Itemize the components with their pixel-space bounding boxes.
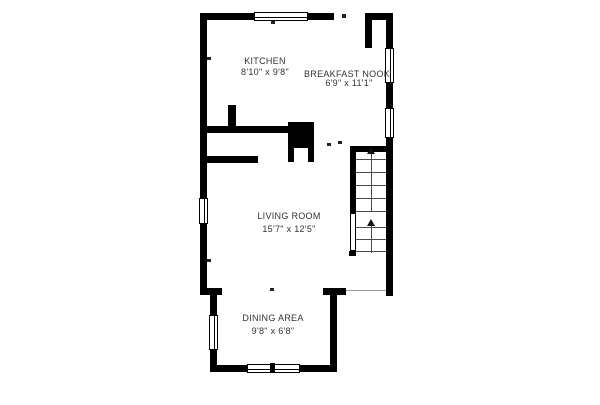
alcove-left-wall (365, 13, 372, 48)
stair-up-arrow-icon (367, 147, 375, 154)
back-door-opening (346, 290, 386, 291)
fireplace-block (288, 122, 314, 148)
opening-tick (327, 143, 331, 146)
stair-direction-line (371, 154, 372, 212)
living-window-left-icon (199, 198, 208, 224)
wall-left-lower (200, 224, 207, 295)
floorplan: KITCHEN 8'10" x 9'8" BREAKFAST NOOK 6'9"… (0, 0, 600, 405)
wall-top-left (200, 13, 254, 20)
wall-right-lower (386, 138, 393, 296)
stair-left-wall (350, 146, 356, 213)
fireplace-left-leg (288, 148, 294, 162)
nook-window-right-2-icon (385, 108, 394, 138)
room-label-kitchen: KITCHEN (215, 56, 315, 66)
kitchen-stub-wall (228, 105, 236, 128)
dining-wall-bottom-left (210, 365, 247, 372)
stair-up-arrow-icon (367, 219, 375, 226)
wall-left-upper (200, 13, 207, 198)
dining-wall-right (330, 288, 337, 372)
hall-wall (207, 156, 258, 163)
room-label-dining-area: DINING AREA (223, 313, 323, 323)
stair-railing-cap (349, 251, 356, 256)
kitchen-window-top-icon (254, 12, 308, 21)
opening-center-tick (270, 288, 274, 291)
stair-direction-line (371, 226, 372, 253)
kitchen-south-wall (207, 126, 288, 133)
wall-tick (207, 57, 211, 60)
room-dims-breakfast-nook: 6'9" x 11'1" (299, 78, 399, 88)
window-mullion (270, 363, 275, 373)
dining-window-left-icon (209, 315, 218, 350)
room-dims-living-room: 15'7" x 12'5" (239, 224, 339, 234)
dining-wall-left-upper (210, 288, 217, 315)
stair-railing (350, 213, 356, 251)
top-opening-tick (342, 14, 346, 18)
wall-top-right (308, 13, 334, 20)
room-label-living-room: LIVING ROOM (239, 211, 339, 221)
room-dims-dining-area: 9'8" x 6'8" (223, 326, 323, 336)
window-center-tick (271, 21, 275, 24)
opening-tick (338, 141, 342, 144)
fireplace-right-leg (308, 148, 314, 162)
wall-right-upper (386, 20, 393, 48)
wall-tick (207, 259, 211, 262)
